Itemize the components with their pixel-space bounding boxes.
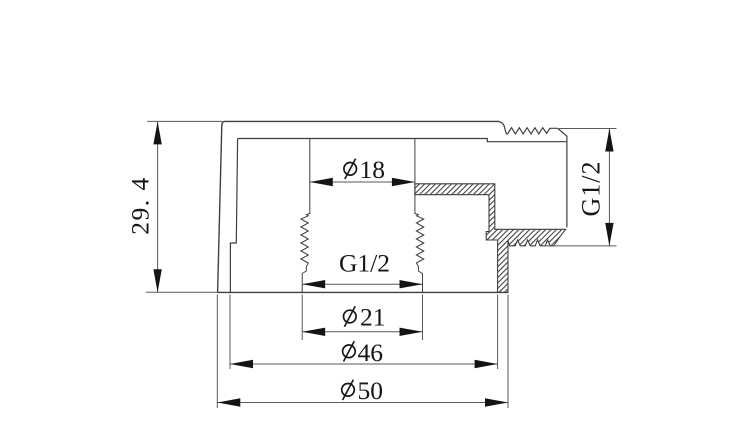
- svg-text:46: 46: [358, 338, 384, 367]
- svg-text:29. 4: 29. 4: [126, 176, 155, 235]
- svg-text:G1/2: G1/2: [339, 249, 390, 278]
- svg-text:18: 18: [360, 155, 386, 184]
- svg-text:21: 21: [360, 303, 386, 332]
- svg-text:G1/2: G1/2: [576, 161, 605, 217]
- svg-text:50: 50: [358, 376, 384, 405]
